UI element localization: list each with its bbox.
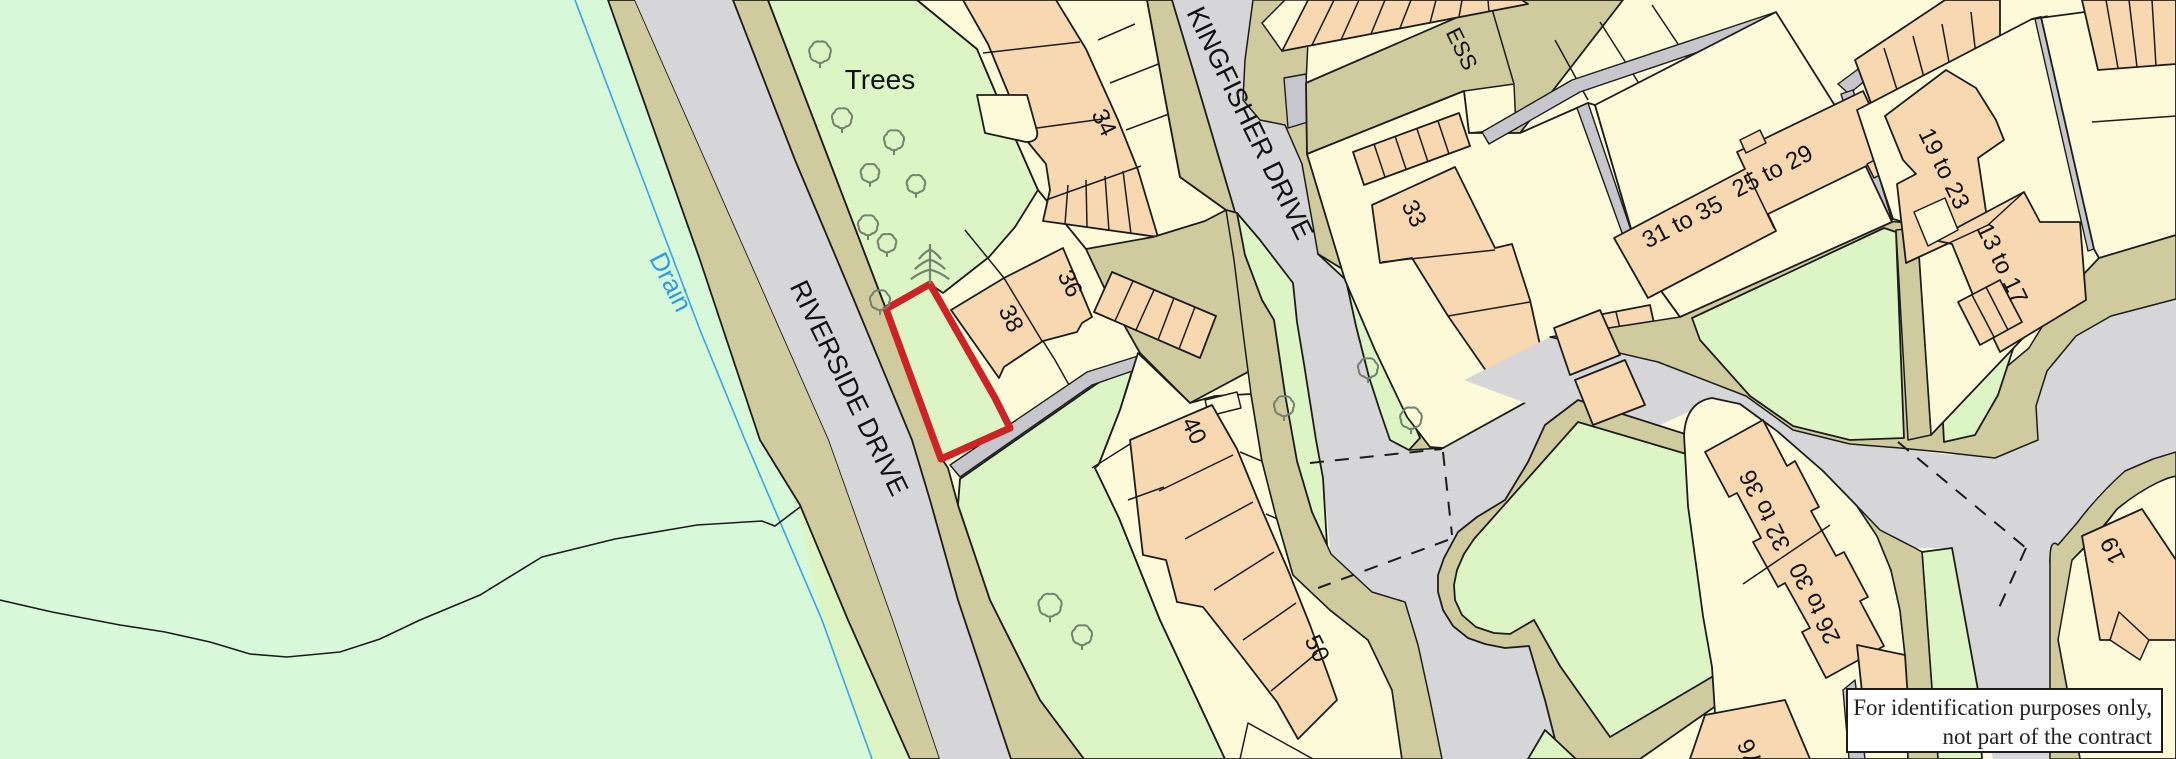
svg-text:For identification purposes on: For identification purposes only, bbox=[1853, 695, 2152, 720]
svg-text:Trees: Trees bbox=[845, 64, 916, 95]
svg-text:not part of the contract: not part of the contract bbox=[1943, 724, 2153, 749]
